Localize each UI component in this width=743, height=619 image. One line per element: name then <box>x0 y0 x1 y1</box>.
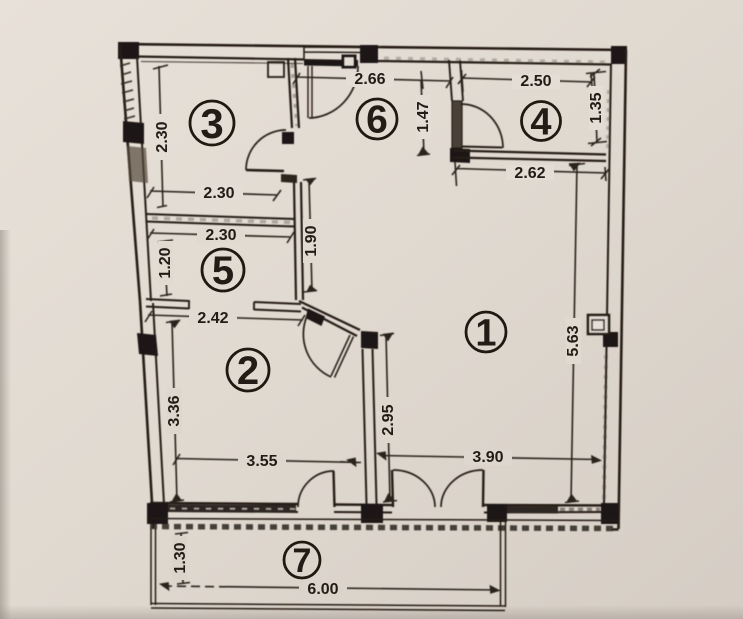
svg-text:7: 7 <box>293 542 312 580</box>
svg-text:1: 1 <box>475 313 496 355</box>
svg-text:4: 4 <box>530 102 551 144</box>
svg-text:1.90: 1.90 <box>303 225 320 256</box>
svg-text:2.95: 2.95 <box>380 404 397 435</box>
svg-text:5.63: 5.63 <box>565 325 582 356</box>
svg-text:2.42: 2.42 <box>197 310 228 327</box>
svg-text:1.20: 1.20 <box>157 247 174 278</box>
svg-text:3.36: 3.36 <box>166 395 183 426</box>
svg-text:3: 3 <box>200 100 223 147</box>
svg-text:1.30: 1.30 <box>172 542 189 573</box>
svg-text:6.00: 6.00 <box>307 581 338 598</box>
svg-text:3.55: 3.55 <box>246 453 277 470</box>
svg-text:2.30: 2.30 <box>203 185 234 202</box>
svg-text:2.30: 2.30 <box>154 121 171 152</box>
svg-text:2.50: 2.50 <box>520 73 551 90</box>
svg-text:5: 5 <box>212 249 234 293</box>
svg-text:2: 2 <box>237 349 259 393</box>
svg-text:3.90: 3.90 <box>472 449 503 466</box>
svg-text:2.30: 2.30 <box>205 227 236 244</box>
svg-text:1.47: 1.47 <box>415 101 432 132</box>
svg-text:2.66: 2.66 <box>354 71 385 88</box>
svg-text:6: 6 <box>366 99 388 142</box>
svg-text:1.35: 1.35 <box>588 92 605 123</box>
svg-text:2.62: 2.62 <box>514 165 545 182</box>
